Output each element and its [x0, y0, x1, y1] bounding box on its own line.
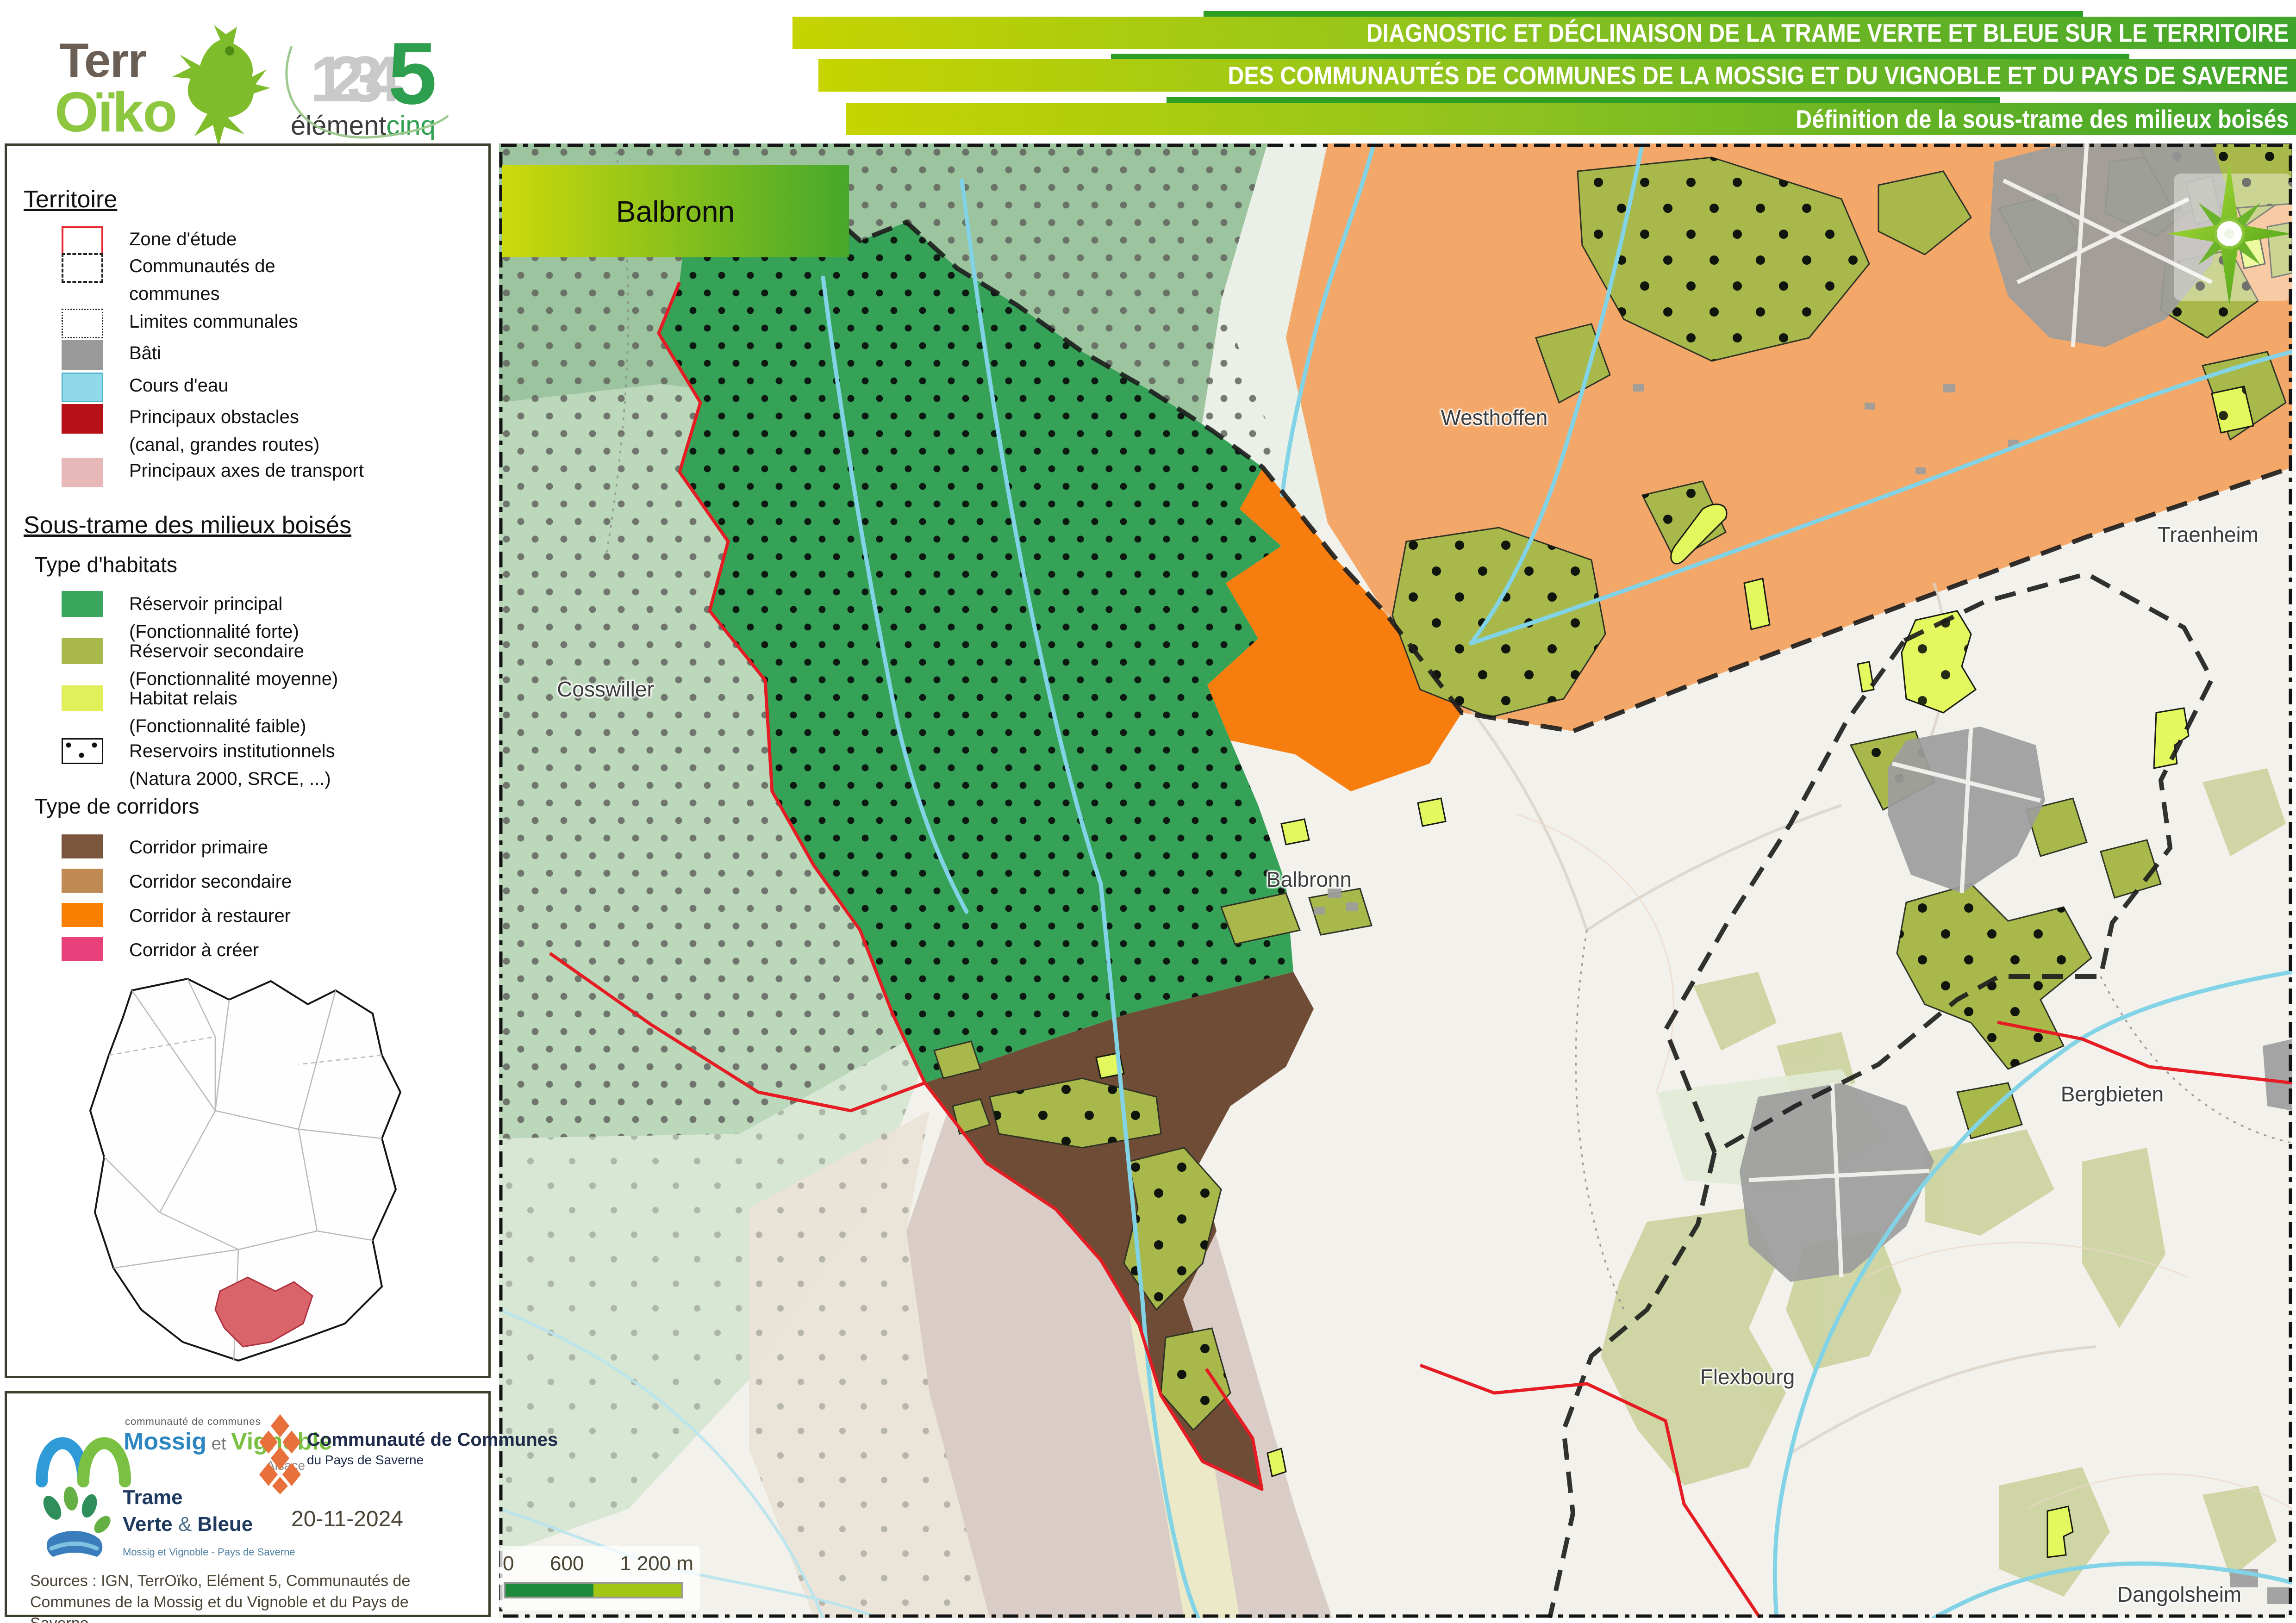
tvb-subtitle: Mossig et Vignoble - Pays de Saverne [123, 1546, 295, 1558]
saverne-name-line1: Communauté de Communes [307, 1430, 558, 1450]
banner-title-3: Définition de la sous-trame des milieux … [846, 103, 2296, 135]
map-label-dangolsheim: Dangolsheim [2117, 1582, 2241, 1607]
legend-soustrame-title: Sous-trame des milieux boisés [24, 511, 351, 539]
legend-corridors-title: Type de corridors [35, 794, 199, 819]
obstacles-swatch [62, 404, 103, 434]
banner-title-2-text: DES COMMUNAUTÉS DE COMMUNES DE LA MOSSIG… [1228, 61, 2289, 90]
reservoir-principal-swatch [62, 591, 103, 617]
map-canvas: Balbronn Westhoffen Traenheim Cosswiller… [499, 143, 2292, 1618]
pays-saverne-logo [255, 1412, 306, 1495]
map-title-box: Balbronn [502, 165, 849, 257]
legend-territoire-title: Territoire [24, 186, 117, 213]
habitat-relais-swatch [62, 685, 103, 711]
page: Terr Oïko 1234 5 élémentcinq DIAGNOSTIC … [0, 0, 2296, 1623]
map-date: 20-11-2024 [273, 1506, 421, 1532]
map-label-flexbourg: Flexbourg [1700, 1364, 1795, 1389]
mossig-vignoble-logo [30, 1412, 137, 1491]
scale-bar: 0 600 1 200 m [500, 1546, 700, 1611]
communautes-swatch [62, 253, 103, 283]
axes-transport-swatch [62, 458, 103, 487]
corridor-primaire-swatch [62, 834, 103, 858]
scale-bar-track [504, 1582, 683, 1598]
scale-seg-light [593, 1584, 681, 1597]
legend-panel: Territoire Zone d'étude Communautés deco… [5, 143, 491, 1378]
banner-title-1: DIAGNOSTIC ET DÉCLINAISON DE LA TRAME VE… [792, 17, 2296, 49]
corridor-creer-swatch [62, 937, 103, 961]
zone-etude-swatch [62, 226, 103, 256]
scale-seg-dark [505, 1584, 593, 1597]
legend-item-habitat-relais: Habitat relais(Fonctionnalité faible) [62, 684, 306, 740]
legend-item-zone-etude: Zone d'étude [62, 225, 237, 256]
overview-minimap [76, 967, 410, 1374]
saverne-name-line2: du Pays de Saverne [307, 1453, 424, 1468]
legend-item-obstacles: Principaux obstacles(canal, grandes rout… [62, 403, 319, 459]
legend-item-communautes: Communautés decommunes [62, 252, 275, 308]
element5-swoosh [278, 28, 472, 148]
mossig-small-text: communauté de communes [125, 1416, 261, 1428]
legend-item-corridor-creer: Corridor à créer [62, 936, 259, 964]
tvb-line1: Trame [123, 1486, 183, 1509]
legend-habitats-title: Type d'habitats [35, 552, 177, 577]
map-label-balbronn: Balbronn [1267, 867, 1352, 892]
banner-title-1-text: DIAGNOSTIC ET DÉCLINAISON DE LA TRAME VE… [1366, 18, 2289, 48]
legend-item-corridor-restaurer: Corridor à restaurer [62, 902, 291, 930]
tvb-line2: Verte & Bleue [123, 1513, 253, 1536]
footer-panel: communauté de communes Mossig et Vignobl… [5, 1391, 491, 1617]
reservoirs-institutionnels-swatch [62, 738, 103, 764]
reservoir-secondaire-swatch [62, 638, 103, 664]
map-label-westhoffen: Westhoffen [1441, 405, 1547, 430]
legend-item-bati: Bâti [62, 339, 161, 370]
scale-zero: 0 [503, 1552, 514, 1575]
compass-rose-icon [2167, 162, 2292, 305]
legend-item-cours-eau: Cours d'eau [62, 372, 228, 402]
limites-swatch [62, 309, 103, 338]
legend-item-limites: Limites communales [62, 308, 298, 338]
banner-title-3-text: Définition de la sous-trame des milieux … [1796, 104, 2289, 134]
legend-item-axes-transport: Principaux axes de transport [62, 457, 364, 487]
trame-verte-bleue-logo [35, 1484, 113, 1562]
legend-item-corridor-secondaire: Corridor secondaire [62, 868, 292, 895]
legend-item-corridor-primaire: Corridor primaire [62, 833, 268, 861]
corridor-secondaire-swatch [62, 869, 103, 893]
scale-mid: 600 [550, 1552, 584, 1575]
legend-item-reservoirs-institutionnels: Reservoirs institutionnels(Natura 2000, … [62, 737, 335, 793]
map-label-bergbieten: Bergbieten [2061, 1082, 2164, 1107]
corridor-restaurer-swatch [62, 903, 103, 927]
frog-icon [163, 23, 283, 153]
scale-end: 1 200 m [620, 1552, 693, 1575]
cours-eau-swatch [62, 373, 103, 402]
terroiko-text-oiko: Oïko [55, 80, 176, 144]
map-graphics [499, 143, 2292, 1618]
sources-text: Sources : IGN, TerrOïko, Elément 5, Comm… [30, 1570, 470, 1623]
bati-swatch [62, 340, 103, 370]
element5-logo: 1234 5 élémentcinq [278, 28, 472, 148]
banner-title-2: DES COMMUNAUTÉS DE COMMUNES DE LA MOSSIG… [818, 59, 2296, 92]
map-label-traenheim: Traenheim [2158, 522, 2259, 547]
map-label-cosswiller: Cosswiller [557, 677, 654, 702]
